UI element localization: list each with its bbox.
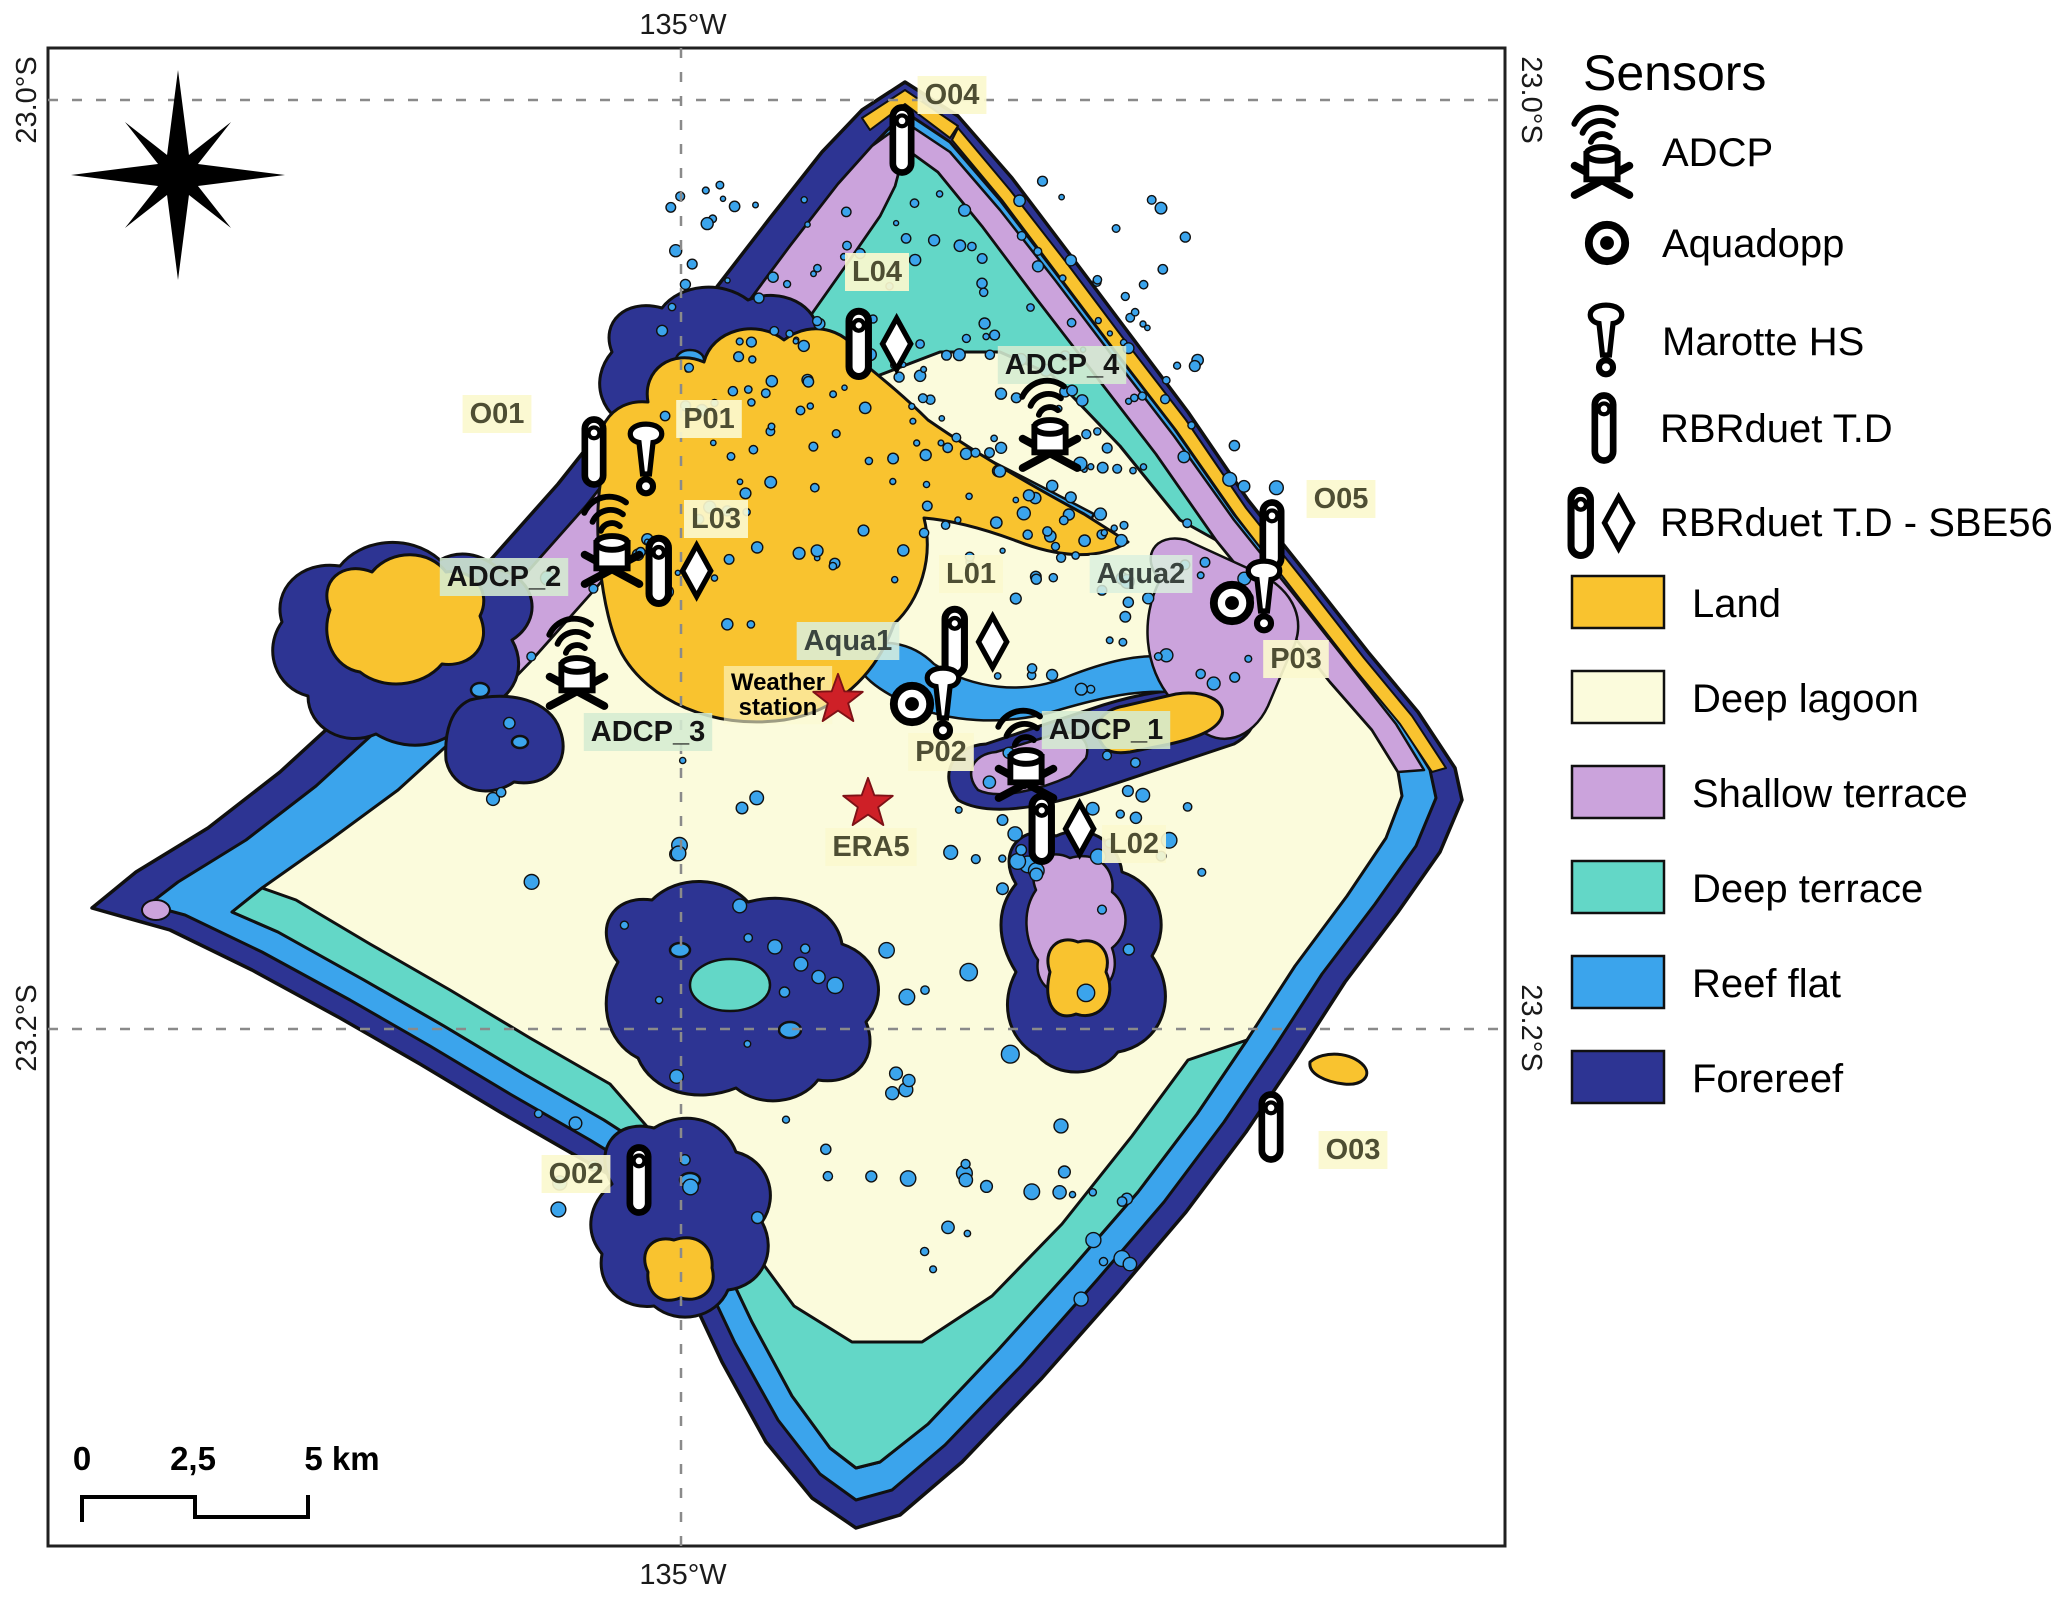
legend-zone-deep-lagoon: Deep lagoon bbox=[1572, 671, 1919, 723]
rbrsbe-icon bbox=[1571, 490, 1633, 555]
svg-text:RBRduet T.D - SBE56: RBRduet T.D - SBE56 bbox=[1660, 501, 2053, 545]
legend: Sensors ADCP Aquadopp Marotte HS RBRduet… bbox=[1571, 45, 2053, 1103]
reef-flat-swatch bbox=[1572, 956, 1664, 1008]
aquadopp-icon bbox=[894, 686, 930, 722]
station-label: O05 bbox=[1314, 483, 1369, 515]
deep-lagoon-swatch bbox=[1572, 671, 1664, 723]
rbr-icon bbox=[1595, 396, 1613, 461]
rbr-icon bbox=[1263, 503, 1281, 568]
rbr-icon bbox=[630, 1148, 648, 1213]
station-label: ADCP_1 bbox=[1049, 714, 1163, 746]
station-label: ADCP_4 bbox=[1005, 349, 1119, 381]
station-label: P03 bbox=[1270, 643, 1322, 675]
legend-zone-forereef: Forereef bbox=[1572, 1051, 1844, 1103]
station-label: L02 bbox=[1109, 828, 1159, 860]
station-label: O01 bbox=[470, 398, 525, 430]
svg-text:RBRduet T.D: RBRduet T.D bbox=[1660, 407, 1893, 451]
axis-right-top: 23.0°S bbox=[1515, 56, 1547, 143]
axis-bottom: 135°W bbox=[639, 1559, 727, 1591]
station-Aqua1: Aqua1 bbox=[797, 622, 900, 660]
station-label: L04 bbox=[852, 256, 902, 288]
adcp-icon bbox=[1572, 103, 1630, 195]
axis-right-bottom: 23.2°S bbox=[1515, 984, 1547, 1071]
legend-sensor-rbr: RBRduet T.D bbox=[1595, 396, 1893, 461]
aquadopp-icon bbox=[1214, 585, 1250, 621]
figure-root: 135°W 135°W 23.0°S 23.2°S 23.0°S 23.2°S … bbox=[0, 0, 2067, 1598]
station-label: ADCP_2 bbox=[447, 561, 561, 593]
station-label: O04 bbox=[925, 79, 980, 111]
scale-tick-0: 0 bbox=[73, 1440, 91, 1477]
station-label: Aqua1 bbox=[804, 625, 893, 657]
svg-text:ADCP: ADCP bbox=[1662, 131, 1773, 175]
legend-zone-deep-terrace: Deep terrace bbox=[1572, 861, 1923, 913]
legend-title: Sensors bbox=[1583, 45, 1766, 101]
shallow-terrace-swatch bbox=[1572, 766, 1664, 818]
west-tip-shallow-patch bbox=[142, 900, 170, 920]
land-swatch bbox=[1572, 576, 1664, 628]
legend-sensor-marotte: Marotte HS bbox=[1590, 305, 1864, 374]
axis-left-bottom: 23.2°S bbox=[11, 984, 43, 1071]
aquadopp-icon bbox=[1589, 225, 1625, 261]
rbr-icon bbox=[1262, 1095, 1280, 1160]
svg-text:Deep terrace: Deep terrace bbox=[1692, 867, 1923, 911]
station-label: P01 bbox=[683, 403, 735, 435]
legend-zone-shallow-terrace: Shallow terrace bbox=[1572, 766, 1968, 818]
station-P03: P03 bbox=[1263, 640, 1329, 678]
legend-sensor-rbrsbe: RBRduet T.D - SBE56 bbox=[1571, 490, 2053, 555]
station-label: Weatherstation bbox=[731, 669, 825, 721]
svg-text:Land: Land bbox=[1692, 582, 1781, 626]
svg-text:Aquadopp: Aquadopp bbox=[1662, 222, 1844, 266]
deep-terrace-swatch bbox=[1572, 861, 1664, 913]
south-islet bbox=[645, 1238, 714, 1301]
scale-tick-end: 5 km bbox=[304, 1440, 379, 1477]
axis-left-top: 23.0°S bbox=[11, 56, 43, 143]
station-label: ERA5 bbox=[832, 831, 909, 863]
marotte-icon bbox=[1590, 305, 1622, 374]
legend-sensor-adcp: ADCP bbox=[1572, 103, 1773, 195]
svg-text:Shallow terrace: Shallow terrace bbox=[1692, 772, 1968, 816]
station-label: ADCP_3 bbox=[591, 716, 705, 748]
scale-tick-mid: 2,5 bbox=[170, 1440, 216, 1477]
station-label: Aqua2 bbox=[1097, 558, 1186, 590]
svg-text:Reef flat: Reef flat bbox=[1692, 962, 1841, 1006]
rbr-icon bbox=[893, 108, 911, 173]
rbr-icon bbox=[585, 420, 603, 485]
svg-text:Marotte HS: Marotte HS bbox=[1662, 320, 1864, 364]
svg-text:Deep lagoon: Deep lagoon bbox=[1692, 677, 1919, 721]
legend-zone-land: Land bbox=[1572, 576, 1781, 628]
station-label: L01 bbox=[946, 558, 996, 590]
station-label: O03 bbox=[1326, 1134, 1381, 1166]
station-label: L03 bbox=[691, 503, 741, 535]
axis-top: 135°W bbox=[639, 9, 727, 41]
legend-sensor-aquadopp: Aquadopp bbox=[1589, 222, 1845, 266]
svg-text:Forereef: Forereef bbox=[1692, 1057, 1844, 1101]
forereef-swatch bbox=[1572, 1051, 1664, 1103]
south-blob-terrace-hole bbox=[690, 959, 770, 1011]
station-P01: P01 bbox=[676, 400, 742, 438]
station-label: P02 bbox=[915, 736, 967, 768]
station-label: O02 bbox=[549, 1158, 604, 1190]
se-island bbox=[1048, 940, 1110, 1016]
legend-zone-reef-flat: Reef flat bbox=[1572, 956, 1841, 1008]
